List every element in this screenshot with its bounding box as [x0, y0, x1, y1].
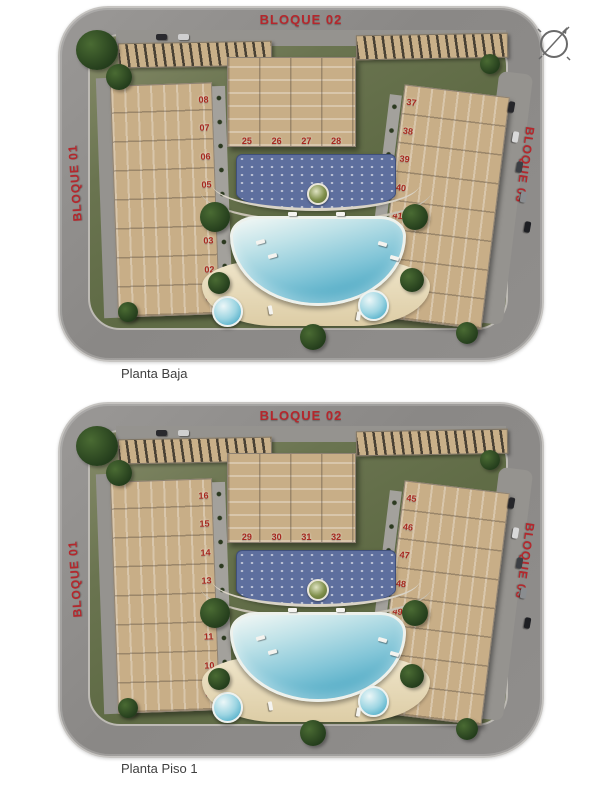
unit-number: 31	[301, 532, 311, 542]
unit-number: 47	[399, 550, 410, 561]
round-pool	[358, 290, 389, 321]
building-bloque-02: 29 30 31 32	[227, 453, 356, 543]
unit-number: 16	[198, 491, 208, 501]
sun-lounger	[288, 212, 297, 216]
block-01-label: BLOQUE 01	[65, 534, 85, 625]
parked-car	[178, 430, 189, 436]
unit-number: 28	[331, 136, 341, 146]
building-bloque-02: 25 26 27 28	[227, 57, 356, 147]
tree	[106, 64, 132, 90]
tree	[106, 460, 132, 486]
sun-lounger	[336, 212, 345, 216]
block-02-label: BLOQUE 02	[60, 408, 542, 423]
tree	[300, 324, 326, 350]
parked-car	[156, 34, 167, 40]
tree	[200, 202, 230, 232]
unit-number: 14	[200, 547, 210, 557]
unit-number: 45	[406, 493, 417, 504]
round-pool	[358, 686, 389, 717]
site-plan-planta-baja: 08 07 06 05 04 03 02 01 25 26 27 28	[58, 6, 544, 362]
unit-number: 13	[201, 575, 211, 585]
tree	[456, 322, 478, 344]
unit-number: 05	[201, 179, 211, 189]
unit-number: 37	[406, 97, 417, 108]
block-02-label: BLOQUE 02	[60, 12, 542, 27]
compass-rose-icon	[531, 21, 577, 67]
tree	[400, 664, 424, 688]
unit-number: 08	[198, 95, 208, 105]
unit-number: 07	[199, 123, 209, 133]
unit-number-row: 29 30 31 32	[232, 532, 351, 542]
parked-car	[524, 617, 532, 629]
render-page: 08 07 06 05 04 03 02 01 25 26 27 28	[0, 0, 600, 785]
unit-number: 32	[331, 532, 341, 542]
caption-planta-baja: Planta Baja	[121, 366, 188, 381]
unit-number: 29	[242, 532, 252, 542]
perimeter-road: 08 07 06 05 04 03 02 01 25 26 27 28	[58, 6, 544, 362]
tree	[402, 204, 428, 230]
unit-number: 15	[199, 519, 209, 529]
round-pool	[212, 692, 243, 723]
tree	[402, 600, 428, 626]
sun-lounger	[336, 608, 345, 612]
unit-number: 27	[301, 136, 311, 146]
tree	[76, 426, 118, 466]
tree	[208, 668, 230, 690]
tree	[300, 720, 326, 746]
unit-number-row: 25 26 27 28	[232, 136, 351, 146]
tree	[118, 302, 138, 322]
tree	[200, 598, 230, 628]
unit-number: 30	[272, 532, 282, 542]
unit-number: 06	[200, 151, 210, 161]
block-01-label: BLOQUE 01	[65, 138, 85, 229]
tree	[456, 718, 478, 740]
tree	[400, 268, 424, 292]
tree	[76, 30, 118, 70]
unit-number: 46	[402, 521, 413, 532]
unit-number: 26	[272, 136, 282, 146]
round-pool	[212, 296, 243, 327]
parked-car	[156, 430, 167, 436]
sun-lounger	[288, 608, 297, 612]
unit-number: 03	[203, 236, 213, 246]
parked-car	[524, 221, 532, 233]
unit-number: 39	[399, 154, 410, 165]
tree	[480, 54, 500, 74]
perimeter-road: 16 15 14 13 12 11 10 09 29 30 31 32	[58, 402, 544, 758]
unit-number: 11	[204, 632, 214, 642]
parked-car	[178, 34, 189, 40]
caption-planta-piso-1: Planta Piso 1	[121, 761, 198, 776]
unit-number: 25	[242, 136, 252, 146]
tree	[208, 272, 230, 294]
tree	[118, 698, 138, 718]
site-plan-planta-piso-1: 16 15 14 13 12 11 10 09 29 30 31 32	[58, 402, 544, 758]
tree	[480, 450, 500, 470]
unit-number: 38	[402, 125, 413, 136]
